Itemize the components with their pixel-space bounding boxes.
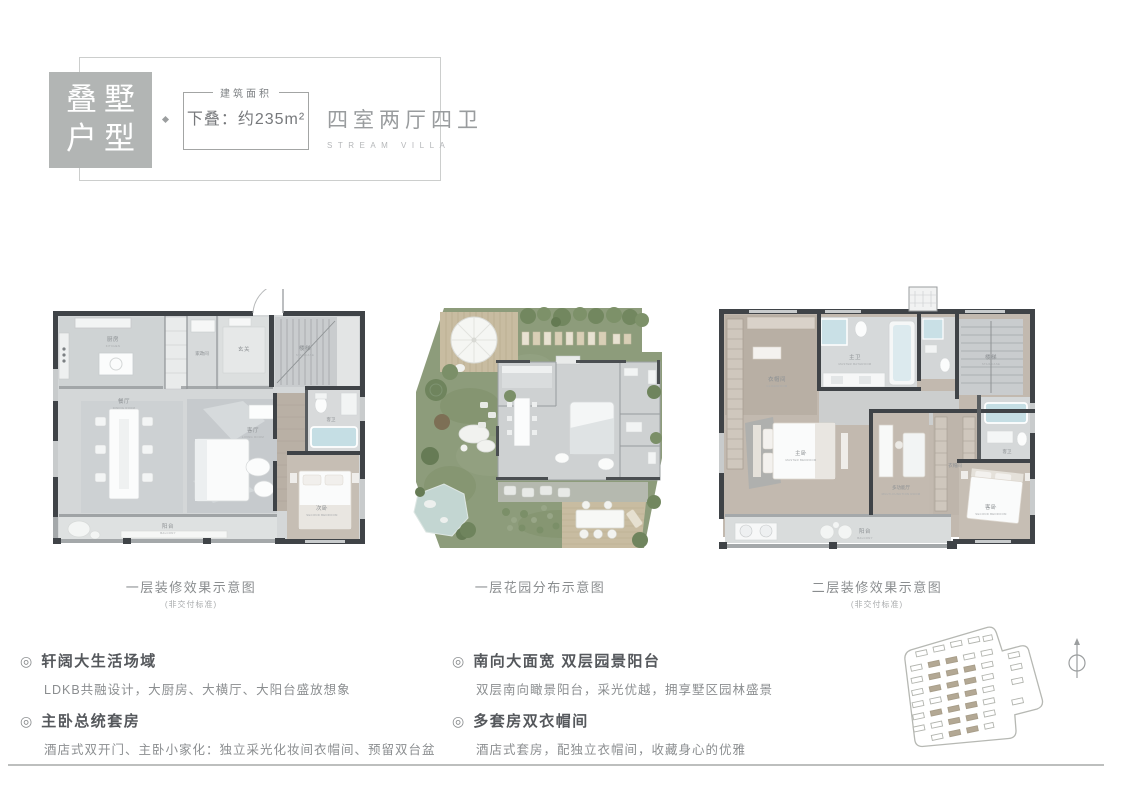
room-label: 多功能厅 (892, 484, 910, 491)
feature-desc: 酒店式双开门、主卧小家化：独立采光化妆间衣帽间、预留双台盆 (44, 739, 436, 758)
caption-text: 一层装修效果示意图 (126, 577, 257, 596)
feature-title: 多套房双衣帽间 (473, 710, 589, 731)
room-label: 楼梯 (985, 353, 997, 361)
room-label: 阳台 (859, 527, 871, 535)
caption-text: 一层花园分布示意图 (475, 577, 606, 596)
room-label: 餐厅 (118, 397, 130, 405)
room-label: 主卫 (849, 353, 861, 361)
room-label: 厨房 (107, 335, 119, 343)
unit-type-badge: 叠墅 户型 (49, 72, 152, 168)
feature-right-2: ◎ 多套房双衣帽间 酒店式套房，配独立衣帽间，收藏身心的优雅 (452, 710, 746, 758)
room-label-en: MASTER BEDROOM (785, 458, 816, 462)
area-box: 建筑面积 下叠：约235m² (183, 92, 309, 150)
caption-note: (非交付标准) (812, 599, 943, 610)
room-label: 家政间 (195, 350, 209, 357)
room-label-en: DINING ROOM (113, 406, 136, 410)
bullseye-icon: ◎ (452, 714, 464, 728)
area-box-legend: 建筑面积 (213, 85, 279, 100)
bullseye-icon: ◎ (20, 714, 32, 728)
room-label: 玄关 (238, 345, 250, 353)
room-label-en: BALCONY (160, 531, 175, 535)
room-label: 主卧 (795, 449, 807, 457)
type-title: 四室两厅四卫 (327, 104, 483, 134)
room-label-en: MASTER BATHROOM (839, 362, 872, 366)
feature-title: 轩阔大生活场域 (41, 650, 157, 671)
room-label: 阳台 (162, 522, 174, 530)
bullseye-icon: ◎ (452, 654, 464, 668)
room-label-en: MULTI-FUNCTION ROOM (882, 492, 921, 496)
feature-left-2: ◎ 主卧总统套房 酒店式双开门、主卧小家化：独立采光化妆间衣帽间、预留双台盆 (20, 710, 436, 758)
feature-desc: 双层南向瞰景阳台，采光优越，拥享墅区园林盛景 (476, 679, 773, 698)
feature-title: 主卧总统套房 (41, 710, 140, 731)
badge-line1: 叠墅 (49, 80, 152, 119)
type-subtitle: STREAM VILLA (327, 141, 483, 150)
floorplan-garden (410, 306, 668, 550)
brochure-page: 叠墅 户型 建筑面积 下叠：约235m² 四室两厅四卫 STREAM VILLA (0, 0, 1131, 785)
caption-plan2: 一层花园分布示意图 (475, 577, 606, 596)
room-label: 客厅 (247, 426, 259, 434)
room-label-en: STAIRCASE (296, 353, 314, 357)
room-label: 次卧 (316, 504, 328, 512)
room-label-en: BALCONY (857, 536, 872, 540)
feature-left-1: ◎ 轩阔大生活场域 LDKB共融设计，大厨房、大横厅、大阳台盛放想象 (20, 650, 351, 698)
area-value: 下叠：约235m² (184, 93, 308, 147)
caption-plan3: 二层装修效果示意图 (非交付标准) (812, 577, 943, 610)
room-label: 楼梯 (299, 344, 311, 352)
room-label-en: CLOAKROOM (767, 384, 788, 388)
caption-plan1: 一层装修效果示意图 (非交付标准) (126, 577, 257, 610)
room-label: 衣帽间 (768, 375, 786, 383)
feature-right-1: ◎ 南向大面宽 双层园景阳台 双层南向瞰景阳台，采光优越，拥享墅区园林盛景 (452, 650, 773, 698)
feature-desc: LDKB共融设计，大厨房、大横厅、大阳台盛放想象 (44, 679, 351, 698)
room-label-en: STAIRCASE (982, 362, 1000, 366)
floorplan-level2: 衣帽间 CLOAKROOM 主卫 MASTER BATHROOM 楼梯 STAI… (719, 283, 1041, 555)
floorplan-level1: 厨房 KITCHEN 家政间 玄关 楼梯 STAIRCASE 餐厅 DINING… (53, 289, 365, 553)
room-label-en: SECOND BEDROOM (306, 513, 338, 517)
caption-note: (非交付标准) (126, 599, 257, 610)
room-label: 客卧 (985, 503, 997, 511)
feature-title: 南向大面宽 双层园景阳台 (473, 650, 660, 671)
badge-line2: 户型 (49, 119, 152, 158)
bullseye-icon: ◎ (20, 654, 32, 668)
room-label-en: LIVING ROOM (242, 435, 264, 439)
room-label: 客卫 (1003, 448, 1012, 455)
type-block: 四室两厅四卫 STREAM VILLA (327, 104, 483, 150)
feature-desc: 酒店式套房，配独立衣帽间，收藏身心的优雅 (476, 739, 746, 758)
room-label-en: SECOND BEDROOM (975, 512, 1007, 516)
site-plan (888, 616, 1063, 771)
caption-text: 二层装修效果示意图 (812, 577, 943, 596)
compass-north-icon (1062, 638, 1092, 682)
room-label-en: KITCHEN (106, 344, 120, 348)
room-label: 客卫 (327, 416, 336, 423)
room-label: 衣帽间 (948, 462, 962, 469)
